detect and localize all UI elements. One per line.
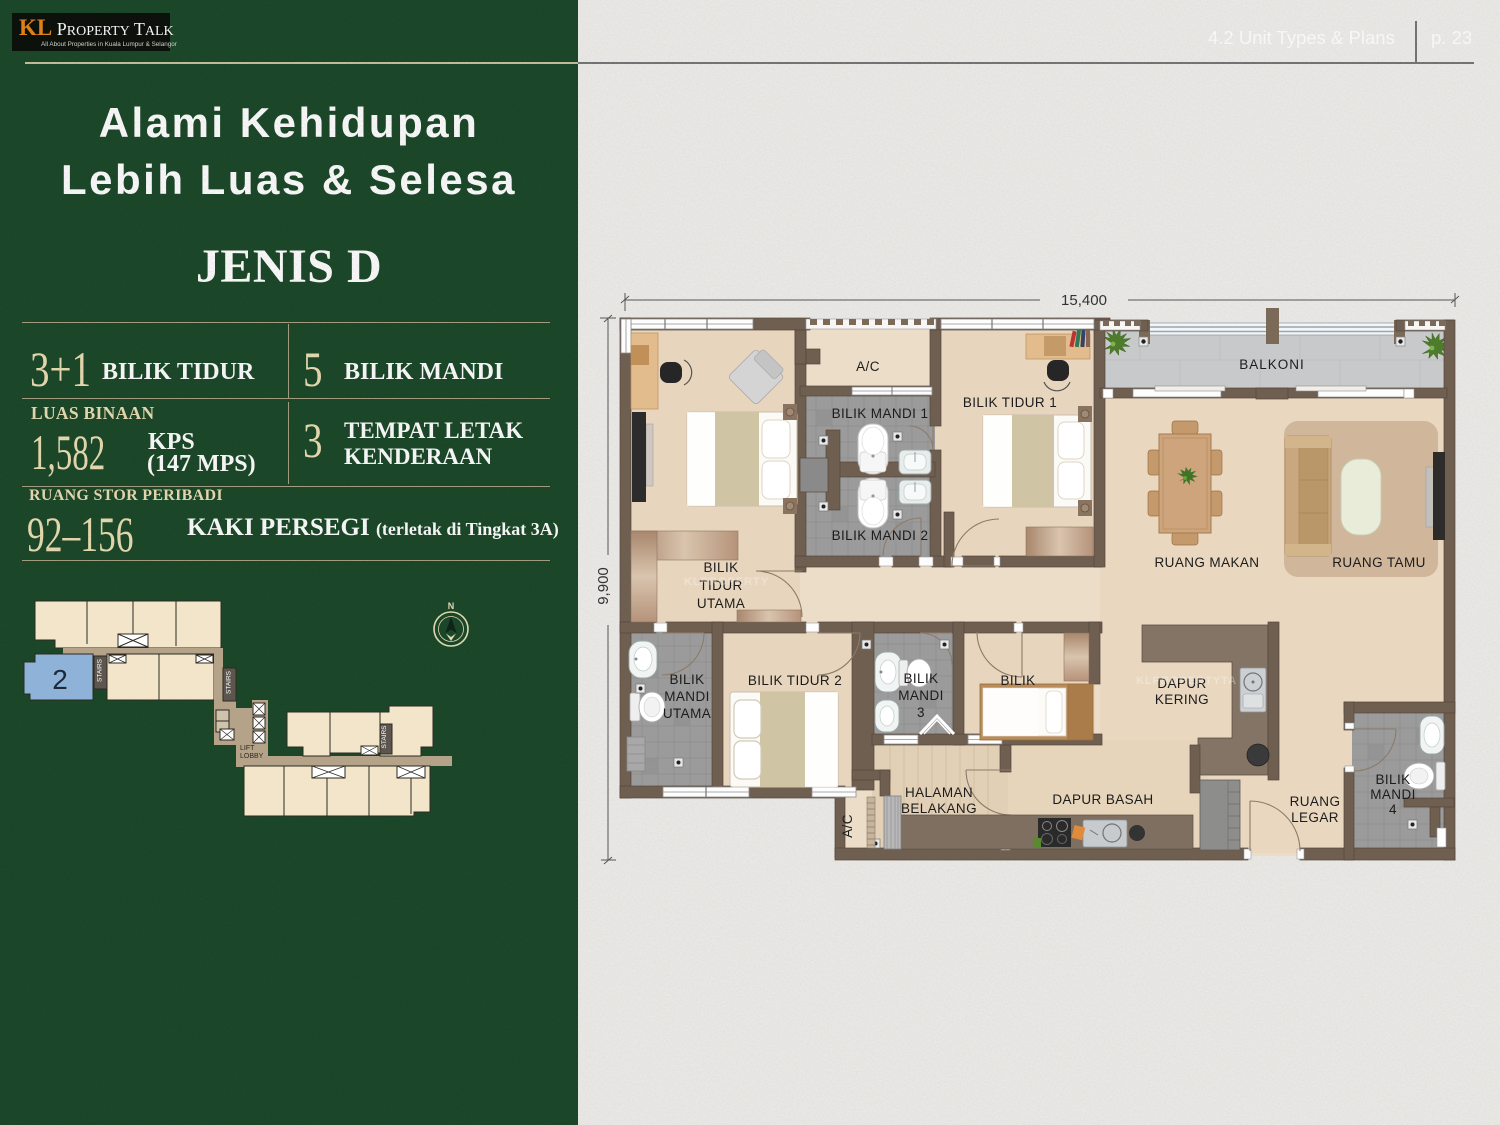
svg-text:LIFT: LIFT [240,745,255,752]
svg-text:DAPUR BASAH: DAPUR BASAH [1052,792,1153,807]
svg-text:BALKONI: BALKONI [1239,357,1305,372]
svg-text:A/C: A/C [840,814,855,838]
svg-text:BILIK TIDUR 1: BILIK TIDUR 1 [963,395,1057,410]
svg-text:4: 4 [1389,802,1397,817]
svg-text:KLPROPERTYTA: KLPROPERTYTA [1136,675,1237,687]
svg-text:BILIK MANDI 1: BILIK MANDI 1 [832,406,929,421]
svg-text:RUANG TAMU: RUANG TAMU [1332,555,1426,570]
svg-text:MANDI: MANDI [1370,787,1416,802]
svg-text:RUANG: RUANG [1290,794,1341,809]
svg-text:2: 2 [52,664,68,695]
svg-text:BILIK MANDI 2: BILIK MANDI 2 [832,528,929,543]
svg-text:N: N [448,601,455,611]
svg-text:RUANG MAKAN: RUANG MAKAN [1155,555,1260,570]
svg-text:STAIRS: STAIRS [226,670,233,694]
svg-text:BILIK: BILIK [669,672,704,687]
svg-text:15,400: 15,400 [1061,292,1107,309]
svg-text:LEGAR: LEGAR [1291,810,1339,825]
svg-text:A/C: A/C [856,359,880,374]
svg-text:KERING: KERING [1155,692,1209,707]
svg-text:MANDI: MANDI [898,688,944,703]
svg-text:UTAMA: UTAMA [697,596,745,611]
svg-text:BILIK: BILIK [903,671,938,686]
svg-text:BELAKANG: BELAKANG [901,801,977,816]
svg-text:BILIK TIDUR 2: BILIK TIDUR 2 [748,673,842,688]
svg-text:MANDI: MANDI [664,689,710,704]
svg-text:HALAMAN: HALAMAN [905,785,973,800]
svg-text:STAIRS: STAIRS [381,725,388,749]
svg-text:UTAMA: UTAMA [663,706,711,721]
svg-text:BILIK: BILIK [703,560,738,575]
svg-text:KLPROPERTY: KLPROPERTY [684,576,769,588]
svg-text:STAIRS: STAIRS [97,658,104,682]
svg-text:9,900: 9,900 [595,567,612,605]
svg-text:BILIK: BILIK [1000,673,1035,688]
svg-text:BILIK: BILIK [1375,772,1410,787]
svg-text:3: 3 [917,705,925,720]
svg-text:LOBBY: LOBBY [240,753,264,760]
